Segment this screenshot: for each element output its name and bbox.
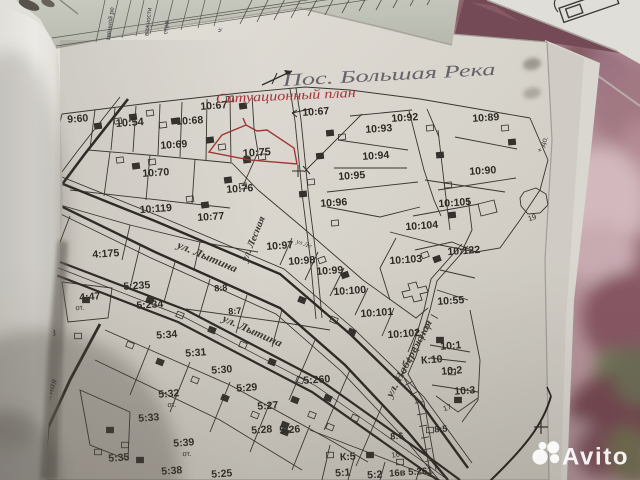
- svg-text:5:32: 5:32: [158, 387, 180, 400]
- svg-text:10:98: 10:98: [288, 254, 316, 268]
- svg-text:ч:: ч:: [217, 27, 225, 33]
- svg-text:4:175: 4:175: [92, 247, 120, 261]
- svg-text:10:1: 10:1: [440, 339, 462, 352]
- svg-text:10:92: 10:92: [391, 111, 419, 125]
- svg-text:8:8: 8:8: [214, 283, 228, 294]
- svg-text:5:33: 5:33: [138, 411, 160, 424]
- svg-text:10:75: 10:75: [242, 146, 271, 160]
- svg-text:10:105: 10:105: [438, 196, 472, 210]
- svg-text:5:27: 5:27: [257, 399, 279, 412]
- svg-text:5:30: 5:30: [211, 363, 233, 376]
- svg-text:Avito: Avito: [562, 444, 629, 471]
- svg-text:10:89: 10:89: [472, 111, 500, 125]
- svg-text:5:25: 5:25: [211, 467, 233, 480]
- svg-text:от.: от.: [167, 400, 176, 410]
- svg-text:4:47: 4:47: [79, 290, 101, 303]
- svg-text:10:103: 10:103: [389, 253, 423, 267]
- svg-text:10:93: 10:93: [365, 122, 393, 136]
- svg-text:10:104: 10:104: [405, 219, 439, 233]
- svg-text:5:234: 5:234: [136, 298, 164, 312]
- svg-text:5:35: 5:35: [108, 451, 130, 464]
- svg-text:10:95: 10:95: [338, 169, 366, 183]
- svg-text:5:1: 5:1: [335, 466, 351, 479]
- svg-text:10:55: 10:55: [437, 294, 465, 308]
- svg-text:10:90: 10:90: [469, 164, 497, 178]
- svg-text:от.: от.: [182, 449, 191, 459]
- svg-text:5:235: 5:235: [123, 279, 151, 293]
- svg-text:10:97: 10:97: [266, 239, 294, 253]
- svg-text:10:3: 10:3: [454, 384, 476, 397]
- svg-text:10:69: 10:69: [160, 138, 188, 152]
- svg-text:16: 16: [391, 449, 401, 459]
- svg-text:5:38: 5:38: [161, 464, 183, 477]
- svg-text:10:77: 10:77: [197, 210, 225, 224]
- svg-text:10:70: 10:70: [142, 166, 170, 180]
- svg-text:К:5: К:5: [340, 450, 357, 463]
- svg-text:8:6: 8:6: [390, 431, 404, 442]
- svg-text:5:28: 5:28: [251, 423, 273, 436]
- svg-text:от.: от.: [75, 303, 84, 313]
- svg-text:К:10: К:10: [421, 353, 444, 366]
- svg-text:5:26: 5:26: [279, 423, 301, 436]
- svg-text:5:34: 5:34: [156, 328, 178, 341]
- svg-text:8:5: 8:5: [434, 424, 448, 435]
- svg-text:10:100: 10:100: [333, 284, 367, 298]
- svg-text:10:96: 10:96: [320, 196, 348, 210]
- svg-text:5:39: 5:39: [173, 436, 195, 449]
- svg-text:10:122: 10:122: [447, 244, 481, 258]
- svg-text:9:60: 9:60: [67, 112, 89, 125]
- svg-text:10:99: 10:99: [316, 264, 344, 278]
- svg-text:10:101: 10:101: [360, 306, 394, 320]
- svg-text:5:2: 5:2: [367, 468, 383, 480]
- svg-text:10:2: 10:2: [441, 364, 463, 377]
- svg-text:5:29: 5:29: [236, 381, 258, 394]
- svg-text:10:76: 10:76: [226, 182, 254, 196]
- svg-text:10:94: 10:94: [362, 149, 390, 163]
- svg-text:5:260: 5:260: [303, 373, 331, 387]
- svg-text:10:67: 10:67: [302, 105, 330, 119]
- svg-text:10:119: 10:119: [139, 202, 172, 216]
- svg-text:10:68: 10:68: [176, 114, 204, 128]
- svg-text:10:54: 10:54: [115, 116, 145, 130]
- svg-text:5:31: 5:31: [185, 346, 207, 359]
